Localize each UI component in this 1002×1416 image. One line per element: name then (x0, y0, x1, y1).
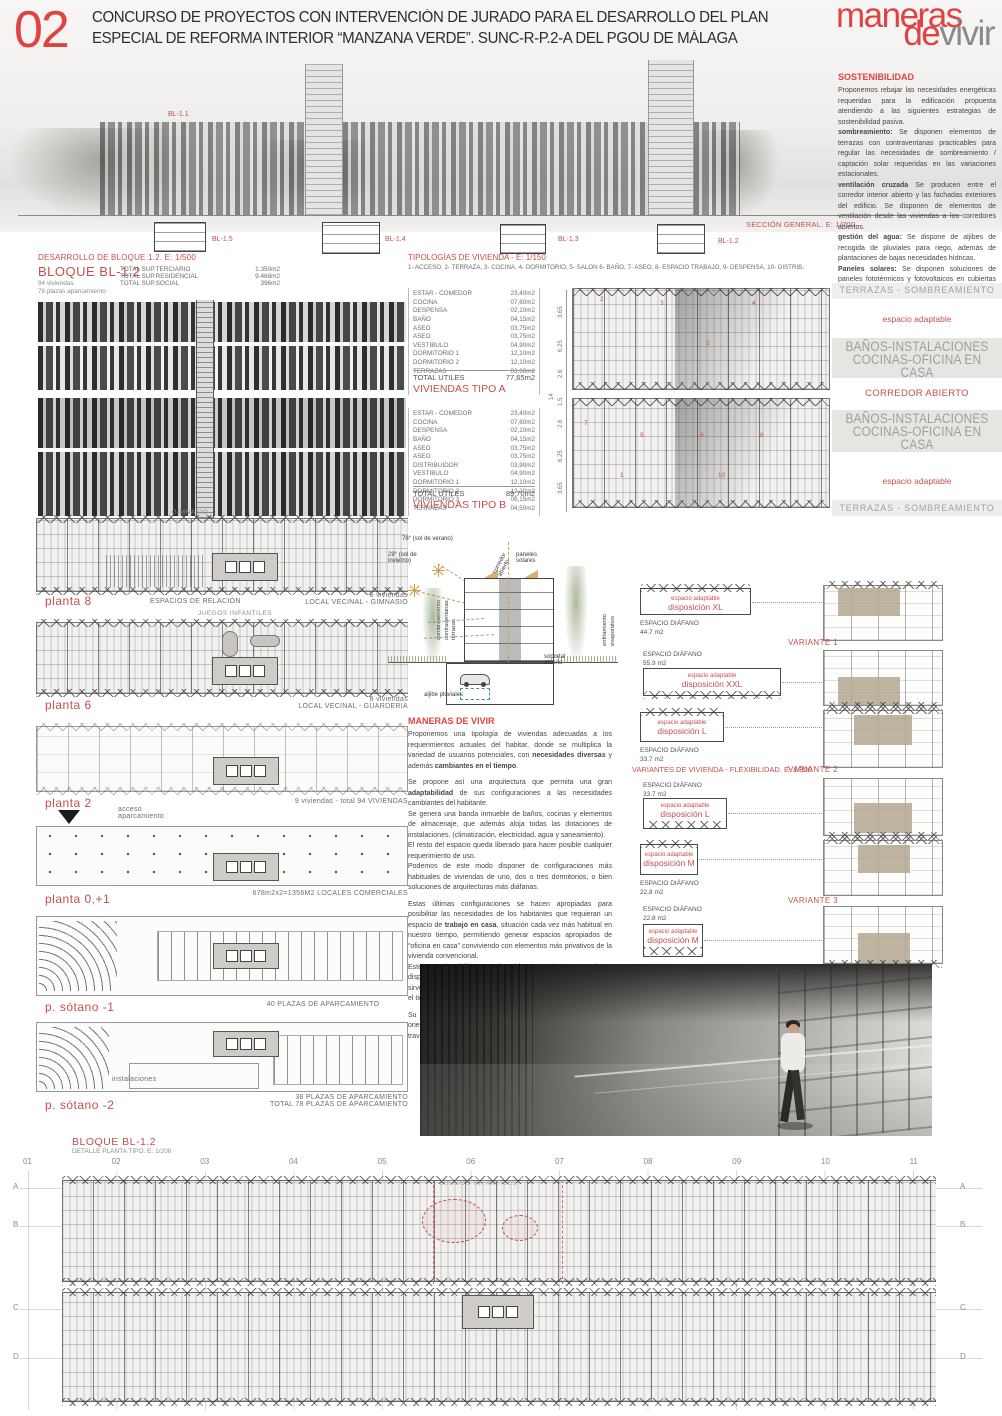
bloque-elevation-band (38, 346, 406, 390)
esquema-bioclimatico: 78° (sol de verano) 29° (sol de invierno… (388, 528, 618, 708)
maneras-paragraph: Podemos de este modo disponer de configu… (408, 862, 612, 894)
diafano-label: ESPACIO DIÁFANO55.9 m2 (643, 650, 702, 669)
bloque-elevation-band (38, 452, 406, 516)
board-title-line2: ESPECIAL DE REFORMA INTERIOR “MANZANA VE… (92, 30, 810, 48)
table-row: DORMITORIO 212,10m2 (413, 359, 535, 368)
table-row: DESPENSA02,10m2 (413, 427, 535, 436)
label-bl-1-2: BL-1.2 (718, 238, 739, 245)
section-cut-box (322, 222, 380, 254)
dim-label: 2.6 (558, 370, 564, 378)
grid-col: 01 (23, 1157, 32, 1166)
planta-0-1-plan (36, 826, 408, 886)
grid-col: 06 (466, 1157, 475, 1166)
variante-plan (823, 710, 943, 768)
planta-8-name: planta 8 (45, 594, 92, 608)
table-row: DISTRIBUIDOR03,90m2 (413, 462, 535, 471)
leader-line (704, 940, 822, 941)
variante-plan (823, 906, 943, 964)
playground-dashed-circle (422, 1199, 486, 1243)
sostenibilidad-block: SOSTENIBILIDAD Proponemos rebajar las ne… (838, 72, 996, 296)
solar-panel-icon (484, 570, 498, 578)
franja-banos-1: BAÑOS-INSTALACIONES COCINAS-OFICINA EN C… (832, 341, 1002, 379)
grid-col: 04 (289, 1157, 298, 1166)
dim-label: 6.25 (558, 340, 564, 352)
planta-0-1-name: planta 0,+1 (45, 892, 110, 906)
variante-plan (823, 778, 943, 836)
acceso-label: acceso aparcamiento (118, 806, 164, 820)
tree-right (564, 566, 588, 666)
section-cut-box (657, 224, 705, 254)
typology-plan-dim-line (566, 290, 567, 512)
typology-plan-tipo-b (572, 398, 830, 508)
plan-number: 2 (600, 296, 604, 303)
grid-row-b-right: B (960, 1220, 965, 1229)
table-row: ASEO03,75m2 (413, 325, 535, 334)
variante-plan (823, 840, 943, 896)
car-icon (460, 674, 490, 685)
planta-2-right-label: 9 viviendas - total 94 VIVIENDAS (258, 798, 408, 805)
sostenibilidad-title: SOSTENIBILIDAD (838, 72, 996, 82)
diafano-label: ESPACIO DIÁFANO33.7 m2 (640, 746, 699, 765)
grid-row-c-right: C (960, 1303, 966, 1312)
sotano-2-name: p. sótano -2 (45, 1098, 114, 1112)
diafano-label: ESPACIO DIÁFANO44.7 m2 (640, 619, 699, 638)
table-row: DESPENSA02,10m2 (413, 307, 535, 316)
acceso-arrow-icon (58, 810, 80, 824)
elevation-tower-1 (305, 64, 343, 215)
sotano-1-name: p. sótano -1 (45, 1000, 114, 1014)
table-row: ASEO03,75m2 (413, 453, 535, 462)
grid-row-b-left: B (13, 1220, 18, 1229)
tipologias-heading: TIPOLOGÍAS DE VIVIENDA - E: 1/150 (408, 253, 546, 262)
planta-6-right-labels: 8 viviendas LOCAL VECINAL - GUARDERIA (208, 696, 408, 710)
paneles-solares-label: paneles solares (516, 552, 548, 564)
label-bl-1-5: BL-1.5 (212, 236, 233, 243)
aljibe-label: aljibe pluviales (424, 692, 484, 698)
variante-box-l: espacio adaptabledisposición L (640, 712, 724, 742)
sotano-2-right-labels: 38 PLAZAS DE APARCAMIENTO TOTAL 78 PLAZA… (208, 1094, 408, 1108)
table-row: BAÑO04,15m2 (413, 316, 535, 325)
franja-corredor: CORREDOR ABIERTO (832, 388, 1002, 399)
grid-col: 05 (378, 1157, 387, 1166)
dim-label: 2.6 (558, 420, 564, 428)
maneras-paragraph: El resto del espacio queda liberado para… (408, 841, 612, 862)
detalle-plan-label: JUEGOS INFANTILES (440, 1181, 518, 1187)
planta-2-name: planta 2 (45, 796, 92, 810)
table-row: VESTIBULO04,90m2 (413, 470, 535, 479)
maneras-paragraph: Proponemos una tipología de viviendas ad… (408, 730, 612, 772)
label-bl-1-4: BL-1.4 (385, 236, 406, 243)
maneras-paragraph: Estas últimas configuraciones se hacen a… (408, 900, 612, 963)
table-row: DORMITORIO 112,10m2 (413, 350, 535, 359)
planta-8-right-labels: 8 viviendas LOCAL VECINAL - GIMNASIO (208, 592, 408, 606)
table-row: ASEO03,75m2 (413, 445, 535, 454)
planta-2-plan (36, 726, 408, 792)
grid-col: 02 (112, 1157, 121, 1166)
bloque-elevation-tower (196, 300, 214, 518)
competition-board: BL-1.1 BL-1.5 BL-1.4 BL-1.3 BL-1.2 SECCI… (0, 0, 1002, 1416)
section-cut-box (500, 224, 546, 254)
stat-row: TOTAL SUP.TERCIARIO1.350m2 (120, 266, 280, 273)
plan-number: 1 (620, 472, 624, 479)
sostenibilidad-paragraph: sombreamiento: Se disponen elementos de … (838, 128, 996, 181)
sostenibilidad-paragraph: Proponemos rebajar las necesidades energ… (838, 86, 996, 128)
detalle-plan-top-band (62, 1180, 936, 1282)
franja-adaptable-1: espacio adaptable (832, 314, 1002, 324)
leader-line (725, 727, 822, 728)
sheet-number: 02 (14, 0, 68, 60)
sol-invierno-label: 29° (sol de invierno) (388, 552, 440, 564)
section-building (464, 578, 554, 662)
table-row: ESTAR - COMEDOR23,40m2 (413, 290, 535, 299)
variante-box-l2: espacio adaptabledisposición L (643, 798, 727, 829)
detalle-plan-bottom-band (62, 1292, 936, 1402)
planta-8-plan (36, 518, 408, 592)
bloque-elevation-band (38, 398, 406, 448)
logo-word-vivir: vivir (939, 14, 994, 53)
variante-box-m2: espacio adaptabledisposición M (643, 924, 703, 957)
tipologias-legend: 1- ACCESO, 2- TERRAZA, 3- COCINA, 4- DOR… (408, 264, 848, 271)
table-row: ESTAR - COMEDOR23,40m2 (413, 410, 535, 419)
table-row: ASEO03,75m2 (413, 333, 535, 342)
variante-box-m: espacio adaptabledisposición M (640, 844, 698, 875)
plan-number: 9 (640, 432, 644, 439)
grid-col: 10 (821, 1157, 830, 1166)
logo: maneras devivir (836, 2, 994, 48)
ground-line (18, 215, 962, 216)
leader-line (752, 602, 822, 603)
desarrollo-heading: DESARROLLO DE BLOQUE 1.2. E: 1/500 (38, 253, 196, 262)
planta-0-1-right-label: 678m2x2=1356M2 LOCALES COMERCIALES (228, 890, 408, 897)
person-torso (781, 1033, 805, 1073)
diafano-label: ESPACIO DIÁFANO22.8 m2 (640, 879, 699, 898)
juegos-label: JUEGOS INFANTILES (180, 610, 290, 617)
table-row: COCINA07,60m2 (413, 419, 535, 428)
stat-row: TOTAL SUP.SOCIAL396m2 (120, 280, 280, 287)
bloque-sub2: 78 plazas aparcamiento (38, 288, 106, 295)
variante-2-label: VARIANTE 2 (788, 765, 838, 774)
board-title: CONCURSO DE PROYECTOS CON INTERVENCIÓN D… (92, 9, 832, 48)
dim-label: 3.65 (558, 306, 564, 318)
bloque-stats: TOTAL SUP.TERCIARIO1.350m2 TOTAL SUP.RES… (120, 266, 280, 287)
variantes-heading: VARIANTES DE VIVIENDA - FLEXIBILIDAD. E:… (632, 765, 812, 774)
maneras-paragraph: Se propone así una arquitectura que perm… (408, 778, 612, 810)
grid-row-c-left: C (13, 1303, 19, 1312)
planta-6-plan (36, 622, 408, 694)
franja-terrazas-bottom: TERRAZAS - SOMBREAMIENTO (832, 503, 1002, 513)
variante-3-label: VARIANTE 3 (788, 896, 838, 905)
plan-number: 3 (660, 300, 664, 307)
table-row: VESTIBULO04,90m2 (413, 342, 535, 351)
updraft-arrow (508, 542, 509, 664)
plan-number: 7 (584, 420, 588, 427)
interior-render (420, 964, 932, 1136)
sotano-2-plan (36, 1022, 408, 1092)
grid-row-a-left: A (13, 1182, 18, 1191)
grid-row-d-right: D (960, 1352, 966, 1361)
dim-label: 3.65 (558, 482, 564, 494)
plan-number: 5 (706, 340, 710, 347)
plan-number: 8 (760, 432, 764, 439)
elevation-tower-2 (648, 60, 694, 215)
playground-dashed-circle (502, 1215, 538, 1241)
sostenibilidad-paragraph: ventilación cruzada Se producen entre el… (838, 181, 996, 234)
dim-label: 6.25 (558, 450, 564, 462)
grid-col: 09 (732, 1157, 741, 1166)
tipo-b-name: VIVIENDAS TIPO B (413, 499, 535, 511)
sostenibilidad-paragraph: gestión del agua: Se dispone de aljibes … (838, 233, 996, 265)
grid-col: 11 (910, 1157, 918, 1166)
variante-plan (823, 650, 943, 706)
section-cut-box (154, 222, 206, 252)
bloque-sub1: 94 viviendas (38, 280, 74, 287)
tipo-b-total: TOTAL UTILES89,70m2 VIVIENDAS TIPO B (408, 486, 540, 511)
variante-box-xl: espacio adaptabledisposición XL (640, 588, 751, 615)
tipo-a-total: TOTAL UTILES77,65m2 VIVIENDAS TIPO A (408, 370, 540, 395)
solar-panel-icon (524, 570, 538, 578)
franja-terrazas-top: TERRAZAS - SOMBREAMIENTO (832, 285, 1002, 295)
section-marker-dashed (562, 1180, 563, 1284)
franja-banos-2: BAÑOS-INSTALACIONES COCINAS-OFICINA EN C… (832, 413, 1002, 451)
detalle-sub: DETALLE PLANTA TIPO. E: 1/200 (72, 1148, 171, 1155)
person-leg (791, 1070, 805, 1121)
dim-label: 14 (549, 393, 555, 400)
enfriamiento-label: enfriamiento evaporativo (602, 584, 617, 646)
leader-line (782, 682, 822, 683)
variante-1-label: VARIANTE 1 (788, 638, 838, 647)
tipo-a-name: VIVIENDAS TIPO A (413, 383, 535, 395)
grid-col: 08 (644, 1157, 653, 1166)
person (775, 1020, 815, 1132)
sol-verano-label: 78° (sol de verano) (402, 536, 462, 542)
maneras-title: MANERAS DE VIVIR (408, 716, 612, 726)
grid-col: 07 (555, 1157, 564, 1166)
label-bl-1-3: BL-1.3 (558, 236, 579, 243)
grass-left (388, 656, 448, 663)
sotano-1-plan (36, 916, 408, 996)
table-row: COCINA07,60m2 (413, 299, 535, 308)
leader-line (699, 859, 822, 860)
person-shadow (777, 1122, 813, 1130)
section-marker-dashed (433, 1180, 434, 1284)
grid-row-d-left: D (13, 1352, 19, 1361)
instalaciones-label: instalaciones (112, 1076, 156, 1083)
general-elevation-drawing (100, 122, 740, 215)
franja-adaptable-2: espacio adaptable (832, 476, 1002, 486)
soportal-label: soportal abierto (544, 654, 574, 666)
leader-line (728, 813, 822, 814)
grid-row-a-right: A (960, 1182, 965, 1191)
diafano-label: ESPACIO DIÁFANO22.8 m2 (643, 905, 702, 924)
grid-col: 03 (200, 1157, 209, 1166)
planta-6-name: planta 6 (45, 698, 92, 712)
sotano-1-right-label: 40 PLAZAS DE APARCAMIENTO (238, 1001, 408, 1008)
plan-number: 6 (700, 432, 704, 439)
logo-word-de: de (903, 14, 939, 53)
stat-row: TOTAL SUP.RESIDENCIAL9.468m2 (120, 273, 280, 280)
variante-plan (823, 585, 943, 641)
bloque-elevation-band (38, 302, 406, 342)
tipo-a-table: ESTAR - COMEDOR23,40m2 COCINA07,60m2 DES… (408, 288, 540, 378)
detalle-bloque-title: BLOQUE BL-1.2 (72, 1136, 156, 1148)
label-bl-1-1: BL-1.1 (168, 111, 189, 118)
table-row: BAÑO04,15m2 (413, 436, 535, 445)
board-title-line1: CONCURSO DE PROYECTOS CON INTERVENCIÓN D… (92, 9, 810, 27)
dim-label: 1.5 (558, 398, 564, 406)
plan-number: 4 (752, 300, 756, 307)
typology-plan-tipo-a (572, 288, 830, 390)
grid-columns: 01 02 03 04 05 06 07 08 09 10 11 (23, 1157, 918, 1166)
maneras-paragraph: Se genera una banda inmueble de baños, c… (408, 810, 612, 842)
plan-number: 10 (718, 472, 725, 479)
variante-box-xxl: espacio adaptabledisposición XXL (643, 668, 781, 696)
